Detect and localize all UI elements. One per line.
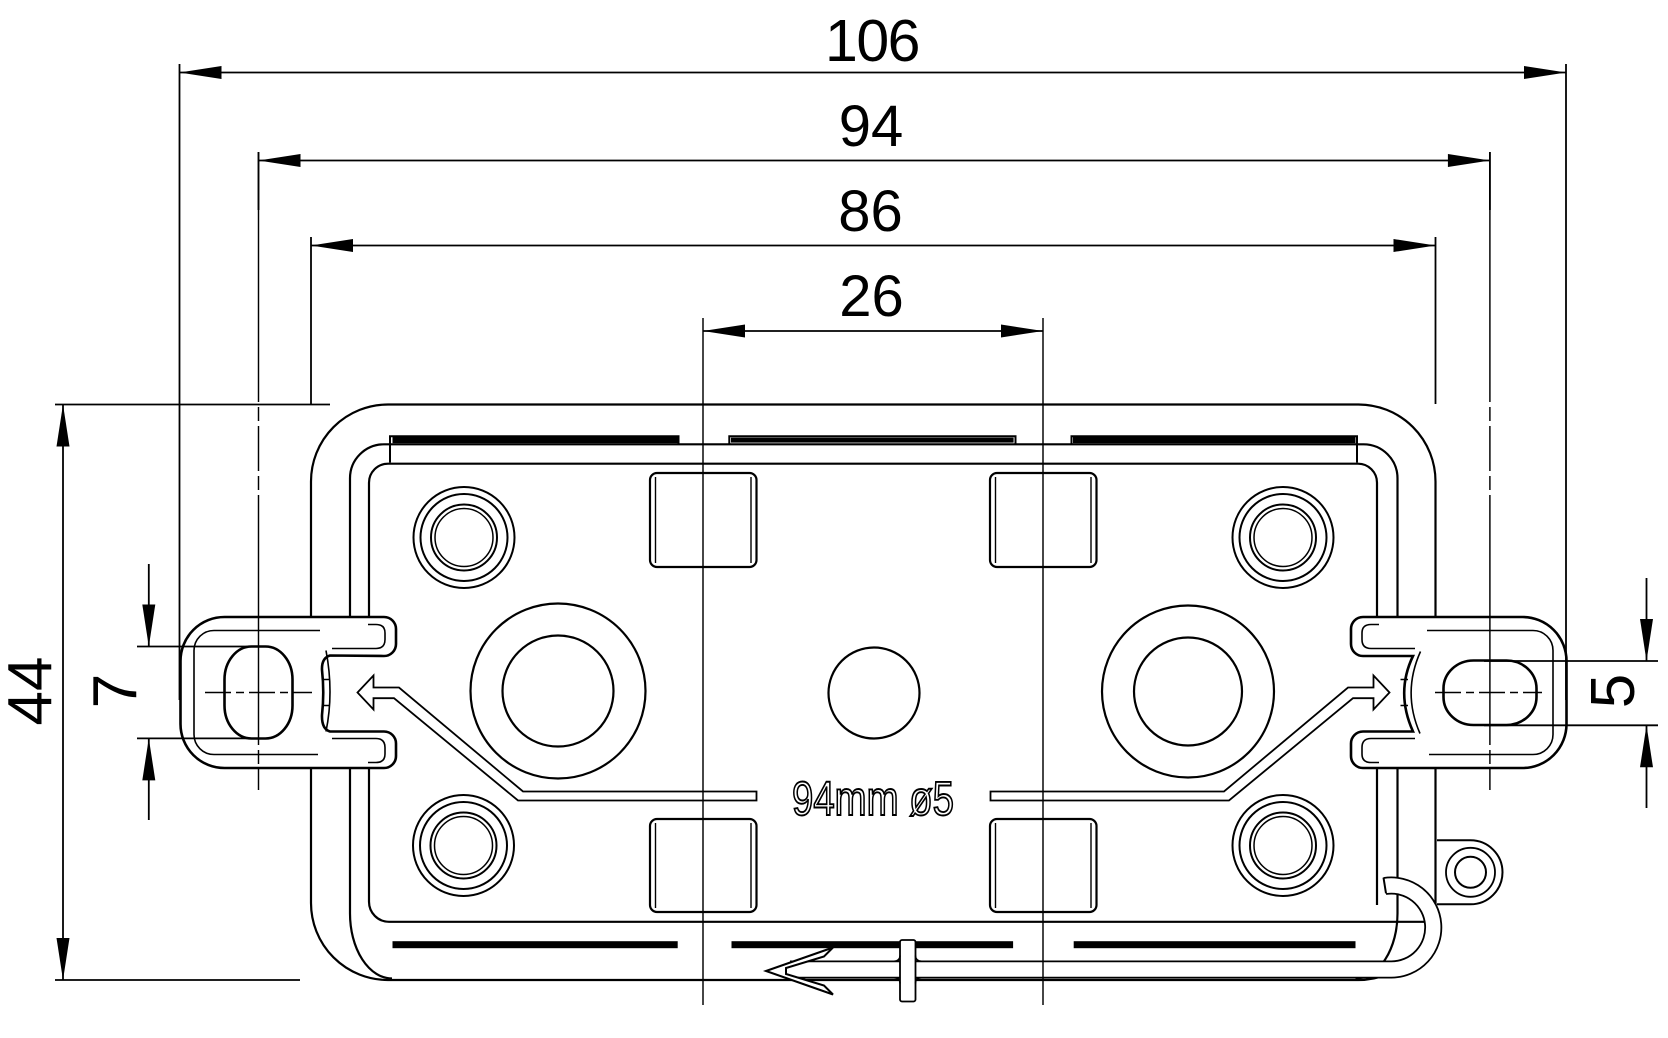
svg-text:106: 106 — [825, 8, 919, 74]
svg-text:26: 26 — [839, 264, 904, 329]
svg-text:44: 44 — [0, 657, 65, 726]
svg-text:94mm ø5: 94mm ø5 — [792, 773, 954, 826]
svg-text:7: 7 — [81, 674, 150, 708]
svg-text:5: 5 — [1579, 674, 1648, 708]
svg-text:86: 86 — [838, 179, 903, 244]
svg-text:94: 94 — [839, 94, 904, 159]
